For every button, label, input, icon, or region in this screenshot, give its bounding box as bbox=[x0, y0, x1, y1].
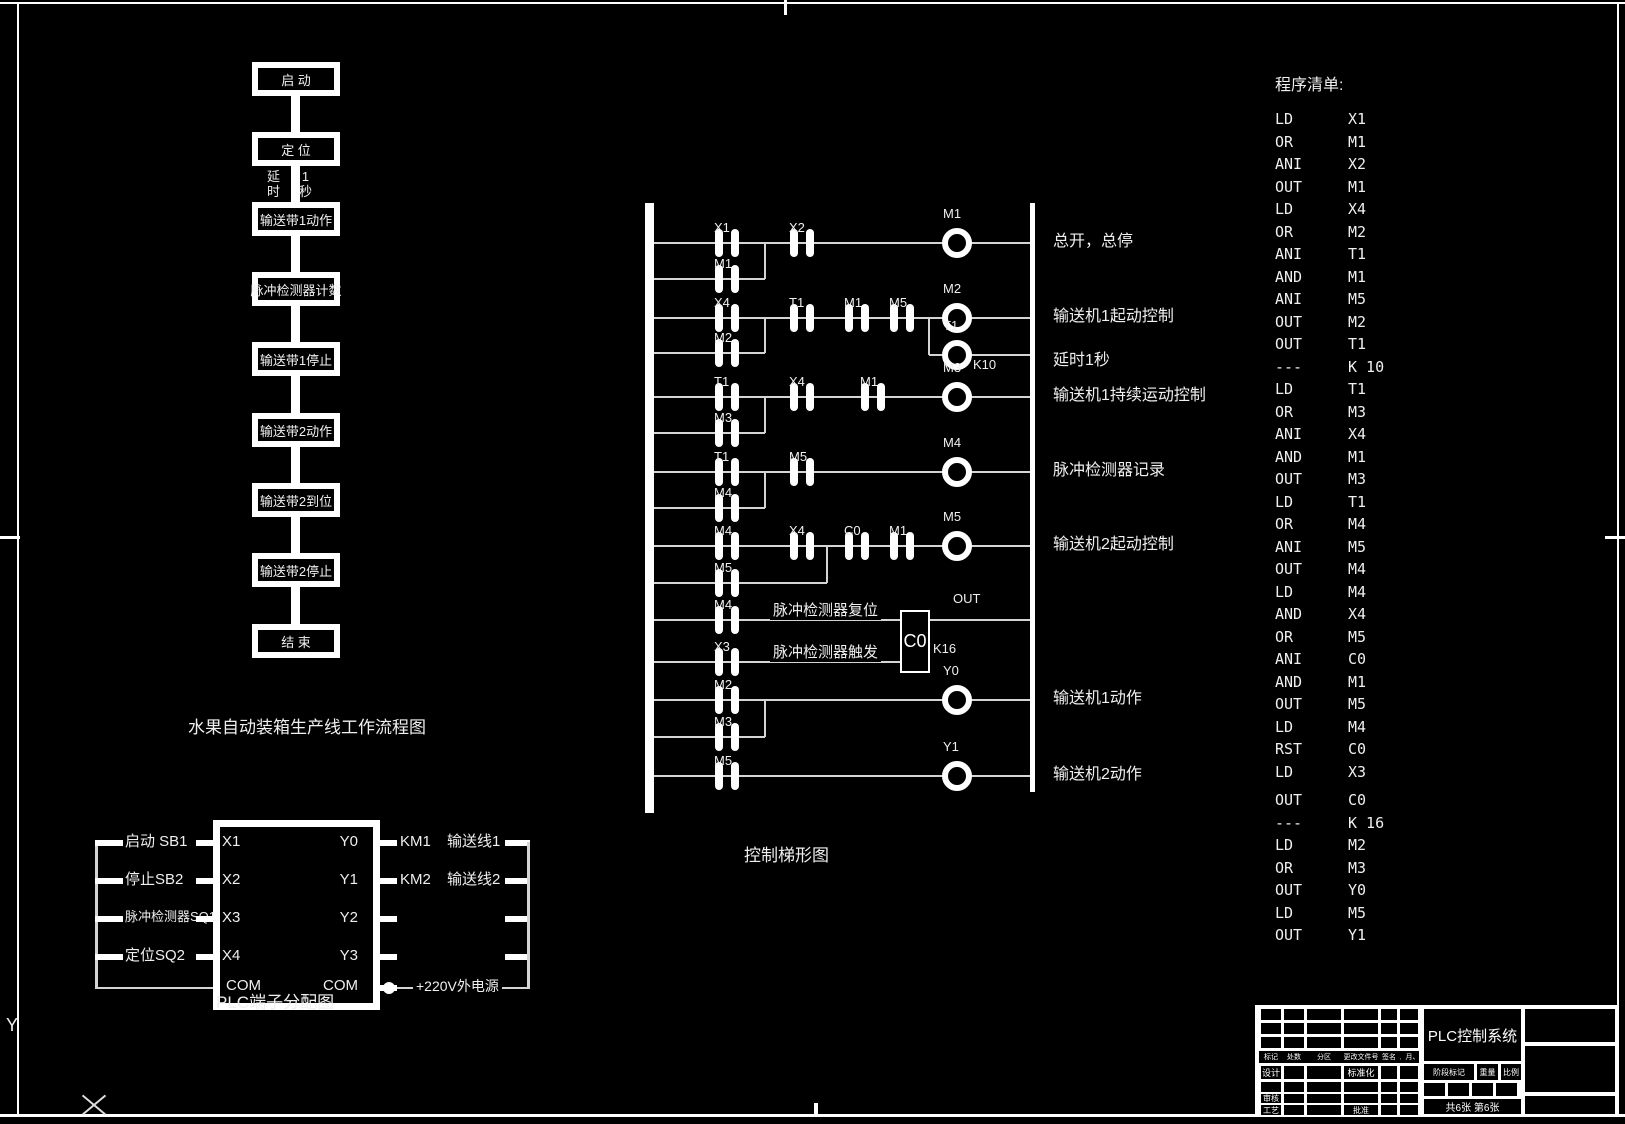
program-arg: M5 bbox=[1348, 290, 1366, 308]
terminal-output-pin: Y2 bbox=[323, 910, 358, 927]
terminal-input-label: 停止SB2 bbox=[125, 872, 183, 889]
program-op: AND bbox=[1275, 269, 1348, 286]
counter-reset-contact-bar bbox=[731, 606, 739, 634]
ladder-contact-bar bbox=[731, 532, 739, 560]
terminal-output-line: 输送线1 bbox=[447, 834, 500, 851]
title-block-cell bbox=[1344, 1037, 1378, 1048]
ladder-coil-label: M1 bbox=[943, 207, 961, 221]
ladder-parallel-contact-label: M1 bbox=[714, 257, 732, 271]
terminal-input-pin: X2 bbox=[222, 872, 240, 889]
title-block-cell bbox=[1284, 1082, 1304, 1092]
counter-out-label: OUT bbox=[953, 592, 980, 606]
title-block-cell bbox=[1261, 1009, 1281, 1020]
ladder-contact-label: T1 bbox=[714, 375, 729, 389]
ladder-coil bbox=[942, 531, 972, 561]
terminal-right-pin bbox=[380, 878, 397, 884]
title-block-cell bbox=[1472, 1083, 1493, 1096]
program-title: 程序清单: bbox=[1275, 77, 1343, 95]
ladder-parallel-wire bbox=[654, 582, 827, 584]
frame-center-tick-right bbox=[1605, 536, 1625, 539]
ladder-coil-label: M5 bbox=[943, 510, 961, 524]
counter-trigger-contact-bar bbox=[731, 648, 739, 676]
title-block-cell bbox=[1448, 1083, 1469, 1096]
program-line: ANIX2 bbox=[1275, 156, 1366, 173]
program-op: OUT bbox=[1275, 561, 1348, 578]
program-op: AND bbox=[1275, 606, 1348, 623]
ladder-coil-label: Y0 bbox=[943, 664, 959, 678]
program-op: ANI bbox=[1275, 156, 1348, 173]
title-block-revision-header: 签名 bbox=[1381, 1051, 1397, 1063]
program-op: AND bbox=[1275, 674, 1348, 691]
program-arg: M4 bbox=[1348, 515, 1366, 533]
ladder-contact-bar bbox=[806, 229, 814, 257]
ladder-contact-label: T1 bbox=[714, 450, 729, 464]
terminal-caption: PLC端子分配图 bbox=[216, 994, 334, 1013]
program-line: OUTC0 bbox=[1275, 792, 1366, 809]
ladder-contact-bar bbox=[806, 383, 814, 411]
title-block-cell bbox=[1381, 1066, 1397, 1079]
ladder-rung-comment: 延时1秒 bbox=[1053, 352, 1110, 370]
ladder-rung-wire bbox=[654, 545, 1030, 547]
title-block-cell bbox=[1400, 1023, 1418, 1034]
title-block-cell bbox=[1400, 1082, 1418, 1092]
program-line: ORM3 bbox=[1275, 860, 1366, 877]
ladder-coil bbox=[942, 685, 972, 715]
frame-border-top bbox=[0, 2, 1625, 4]
program-line: LDM4 bbox=[1275, 719, 1366, 736]
title-block-cell: 工艺 bbox=[1261, 1105, 1281, 1115]
ladder-parallel-contact-label: M3 bbox=[714, 715, 732, 729]
program-arg: M2 bbox=[1348, 223, 1366, 241]
ladder-contact-label: M1 bbox=[860, 375, 878, 389]
program-op: LD bbox=[1275, 381, 1348, 398]
ucs-y-axis-label: Y bbox=[6, 1016, 18, 1036]
program-line: OUTM3 bbox=[1275, 471, 1366, 488]
program-line: LDT1 bbox=[1275, 494, 1366, 511]
ladder-timer-coil-label: T1 bbox=[943, 319, 958, 333]
ladder-contact-label: C0 bbox=[844, 524, 861, 538]
ladder-rung-comment: 脉冲检测器记录 bbox=[1053, 462, 1165, 480]
title-block-scale: 比例 bbox=[1501, 1064, 1521, 1080]
ladder-parallel-join-wire bbox=[764, 397, 766, 433]
ladder-contact-bar bbox=[906, 532, 914, 560]
title-block-cell bbox=[1400, 1037, 1418, 1048]
title-block-cell bbox=[1381, 1094, 1397, 1103]
program-line: ANDX4 bbox=[1275, 606, 1366, 623]
ladder-parallel-wire bbox=[654, 352, 765, 354]
title-block-stage-mark: 阶段标记 bbox=[1424, 1064, 1474, 1080]
flowchart-step-box: 输送带1动作 bbox=[252, 202, 340, 236]
terminal-input-pin: X4 bbox=[222, 948, 240, 965]
counter-reset-contact-label: M4 bbox=[714, 598, 732, 612]
flowchart-step-box: 输送带2动作 bbox=[252, 413, 340, 447]
ladder-contact-label: M5 bbox=[789, 450, 807, 464]
program-op: OR bbox=[1275, 629, 1348, 646]
program-arg: X2 bbox=[1348, 155, 1366, 173]
ladder-contact-bar bbox=[731, 686, 739, 714]
terminal-right-bracket bbox=[527, 842, 530, 989]
ladder-contact-label: M2 bbox=[714, 678, 732, 692]
terminal-left-stub bbox=[95, 916, 123, 922]
flowchart-step-box: 结 束 bbox=[252, 624, 340, 658]
title-block-cell bbox=[1261, 1037, 1281, 1048]
program-line: ANIC0 bbox=[1275, 651, 1366, 668]
title-block-right-cell bbox=[1525, 1046, 1615, 1092]
program-op: LD bbox=[1275, 111, 1348, 128]
program-line: ANIM5 bbox=[1275, 291, 1366, 308]
frame-center-tick-top bbox=[784, 0, 787, 15]
title-block-drawing-title: PLC控制系统 bbox=[1424, 1009, 1521, 1061]
ladder-contact-label: M4 bbox=[714, 524, 732, 538]
program-arg: M3 bbox=[1348, 470, 1366, 488]
counter-trigger-contact-label: X3 bbox=[714, 640, 730, 654]
flowchart-step-box: 输送带1停止 bbox=[252, 342, 340, 376]
program-op: OR bbox=[1275, 404, 1348, 421]
title-block-cell bbox=[1381, 1037, 1397, 1048]
ladder-contact-label: X4 bbox=[789, 375, 805, 389]
program-line: OUTM4 bbox=[1275, 561, 1366, 578]
program-arg: M5 bbox=[1348, 628, 1366, 646]
title-block-cell bbox=[1400, 1105, 1418, 1115]
program-line: RSTC0 bbox=[1275, 741, 1366, 758]
ladder-rung-wire bbox=[654, 775, 1030, 777]
frame-border-right bbox=[1617, 2, 1619, 1117]
ladder-parallel-join-wire bbox=[826, 546, 828, 583]
program-line: OUTM1 bbox=[1275, 179, 1366, 196]
ladder-contact-label: X2 bbox=[789, 221, 805, 235]
title-block-cell bbox=[1284, 1009, 1304, 1020]
program-arg: C0 bbox=[1348, 650, 1366, 668]
ladder-contact-label: X4 bbox=[789, 524, 805, 538]
program-op: LD bbox=[1275, 494, 1348, 511]
title-block-cell bbox=[1344, 1082, 1378, 1092]
program-op: LD bbox=[1275, 584, 1348, 601]
terminal-input-label: 启动 SB1 bbox=[125, 834, 188, 851]
ladder-contact-bar bbox=[861, 532, 869, 560]
program-arg: M2 bbox=[1348, 836, 1366, 854]
ladder-rung-wire bbox=[654, 699, 1030, 701]
ladder-rung-comment: 总开，总停 bbox=[1053, 233, 1133, 251]
terminal-left-stub bbox=[95, 840, 123, 846]
title-block-cell bbox=[1284, 1037, 1304, 1048]
title-block-cell bbox=[1400, 1009, 1418, 1020]
program-op: OUT bbox=[1275, 314, 1348, 331]
terminal-input-pin: X3 bbox=[222, 910, 240, 927]
ladder-coil-label: M4 bbox=[943, 436, 961, 450]
title-block-cell bbox=[1344, 1023, 1378, 1034]
program-line: ORM5 bbox=[1275, 629, 1366, 646]
ladder-contact-bar bbox=[806, 458, 814, 486]
ladder-rung-comment: 输送机1动作 bbox=[1053, 690, 1142, 708]
ladder-parallel-contact-label: M5 bbox=[714, 561, 732, 575]
title-block-cell bbox=[1344, 1009, 1378, 1020]
program-arg: M4 bbox=[1348, 560, 1366, 578]
program-arg: M3 bbox=[1348, 859, 1366, 877]
ladder-contact-bar bbox=[806, 532, 814, 560]
program-arg: T1 bbox=[1348, 245, 1366, 263]
ladder-parallel-contact-bar bbox=[731, 419, 739, 447]
program-op: OR bbox=[1275, 134, 1348, 151]
ladder-timer-k-label: K10 bbox=[973, 358, 996, 372]
title-block-cell bbox=[1381, 1023, 1397, 1034]
program-arg: Y0 bbox=[1348, 881, 1366, 899]
program-line: ORM4 bbox=[1275, 516, 1366, 533]
program-line: LDM2 bbox=[1275, 837, 1366, 854]
program-arg: M3 bbox=[1348, 403, 1366, 421]
program-line: ANIT1 bbox=[1275, 246, 1366, 263]
program-op: OUT bbox=[1275, 179, 1348, 196]
program-op: OUT bbox=[1275, 927, 1348, 944]
title-block-cell bbox=[1284, 1105, 1304, 1115]
terminal-left-pin bbox=[196, 954, 213, 960]
title-block-weight: 重量 bbox=[1477, 1064, 1498, 1080]
terminal-output-pin: Y3 bbox=[323, 948, 358, 965]
title-block-cell bbox=[1307, 1023, 1341, 1034]
program-line: LDX3 bbox=[1275, 764, 1366, 781]
program-line: LDX1 bbox=[1275, 111, 1366, 128]
program-arg: M4 bbox=[1348, 583, 1366, 601]
program-op: OR bbox=[1275, 224, 1348, 241]
program-op: LD bbox=[1275, 837, 1348, 854]
program-arg: M5 bbox=[1348, 538, 1366, 556]
ladder-contact-bar bbox=[731, 304, 739, 332]
ladder-contact-bar bbox=[731, 229, 739, 257]
ladder-contact-label: M1 bbox=[844, 296, 862, 310]
terminal-junction-dot bbox=[383, 982, 395, 994]
title-block-revision-header: 年、月、日 bbox=[1400, 1051, 1418, 1063]
program-line: ANIX4 bbox=[1275, 426, 1366, 443]
title-block-cell bbox=[1400, 1066, 1418, 1079]
ladder-contact-bar bbox=[731, 458, 739, 486]
terminal-output-label: KM2 bbox=[400, 872, 431, 889]
title-block-cell: 批准 bbox=[1344, 1105, 1378, 1115]
program-arg: C0 bbox=[1348, 791, 1366, 809]
terminal-output-pin: Y0 bbox=[323, 834, 358, 851]
program-op: ANI bbox=[1275, 426, 1348, 443]
ladder-parallel-contact-bar bbox=[731, 494, 739, 522]
program-arg: X4 bbox=[1348, 200, 1366, 218]
ladder-contact-bar bbox=[731, 383, 739, 411]
terminal-power-label: +220V外电源 bbox=[413, 979, 502, 994]
ladder-coil bbox=[942, 228, 972, 258]
terminal-input-pin: X1 bbox=[222, 834, 240, 851]
title-block-cell bbox=[1344, 1094, 1378, 1103]
title-block-cell: 设计 bbox=[1261, 1066, 1281, 1079]
title-block-cell bbox=[1307, 1037, 1341, 1048]
title-block-cell bbox=[1381, 1082, 1397, 1092]
ladder-caption: 控制梯形图 bbox=[744, 847, 829, 866]
program-arg: T1 bbox=[1348, 380, 1366, 398]
title-block-cell bbox=[1496, 1083, 1517, 1096]
flowchart-step-box: 定 位 bbox=[252, 132, 340, 166]
program-op: ANI bbox=[1275, 651, 1348, 668]
program-arg: M5 bbox=[1348, 904, 1366, 922]
ladder-contact-label: T1 bbox=[789, 296, 804, 310]
title-block-cell bbox=[1284, 1023, 1304, 1034]
program-op: OR bbox=[1275, 860, 1348, 877]
program-line: ANDM1 bbox=[1275, 269, 1366, 286]
ladder-parallel-wire bbox=[654, 507, 765, 509]
ladder-parallel-contact-bar bbox=[731, 723, 739, 751]
ladder-parallel-contact-label: M3 bbox=[714, 411, 732, 425]
program-arg: M1 bbox=[1348, 178, 1366, 196]
ladder-contact-label: M1 bbox=[889, 524, 907, 538]
title-block-cell bbox=[1307, 1082, 1341, 1092]
flowchart-delay-note-left: 延时 bbox=[266, 169, 281, 199]
flowchart-caption: 水果自动装箱生产线工作流程图 bbox=[188, 719, 426, 738]
terminal-right-pin bbox=[380, 954, 397, 960]
program-op: ANI bbox=[1275, 539, 1348, 556]
title-block-revision-header: 处数 bbox=[1284, 1051, 1304, 1063]
counter-out-wire bbox=[930, 619, 1030, 621]
program-op: LD bbox=[1275, 905, 1348, 922]
title-block-cell bbox=[1261, 1023, 1281, 1034]
counter-k-label: K16 bbox=[933, 642, 956, 656]
program-op: LD bbox=[1275, 201, 1348, 218]
program-arg: C0 bbox=[1348, 740, 1366, 758]
ladder-rung-wire bbox=[654, 317, 1030, 319]
program-line: OUTY0 bbox=[1275, 882, 1366, 899]
ladder-contact-label: X1 bbox=[714, 221, 730, 235]
ladder-left-rail bbox=[645, 203, 654, 813]
terminal-left-pin bbox=[196, 916, 213, 922]
ladder-contact-bar bbox=[731, 762, 739, 790]
program-arg: K 16 bbox=[1348, 814, 1384, 832]
program-arg: M1 bbox=[1348, 448, 1366, 466]
ladder-contact-bar bbox=[877, 383, 885, 411]
program-arg: X1 bbox=[1348, 110, 1366, 128]
counter-trigger-text: 脉冲检测器触发 bbox=[770, 645, 881, 662]
program-line: OUTY1 bbox=[1275, 927, 1366, 944]
program-arg: X4 bbox=[1348, 605, 1366, 623]
program-op: ANI bbox=[1275, 246, 1348, 263]
program-arg: M2 bbox=[1348, 313, 1366, 331]
ladder-coil-label: Y1 bbox=[943, 740, 959, 754]
ladder-contact-label: X4 bbox=[714, 296, 730, 310]
terminal-output-label: KM1 bbox=[400, 834, 431, 851]
program-arg: M1 bbox=[1348, 268, 1366, 286]
program-line: ORM2 bbox=[1275, 224, 1366, 241]
program-line: ORM1 bbox=[1275, 134, 1366, 151]
program-arg: X4 bbox=[1348, 425, 1366, 443]
title-block-revision-header: 分区 bbox=[1307, 1051, 1341, 1063]
title-block-cell bbox=[1424, 1083, 1445, 1096]
title-block-cell bbox=[1307, 1094, 1341, 1103]
flowchart-step-box: 输送带2停止 bbox=[252, 553, 340, 587]
terminal-right-pin bbox=[380, 840, 397, 846]
program-arg: M1 bbox=[1348, 133, 1366, 151]
ladder-parallel-wire bbox=[654, 736, 765, 738]
program-line: OUTT1 bbox=[1275, 336, 1366, 353]
program-line: LDX4 bbox=[1275, 201, 1366, 218]
flowchart-step-box: 输送带2到位 bbox=[252, 483, 340, 517]
program-line: ANIM5 bbox=[1275, 539, 1366, 556]
program-line: ANDM1 bbox=[1275, 674, 1366, 691]
ladder-coil-label: M2 bbox=[943, 282, 961, 296]
program-op: LD bbox=[1275, 719, 1348, 736]
ladder-coil bbox=[942, 457, 972, 487]
program-op: OUT bbox=[1275, 882, 1348, 899]
program-op: OUT bbox=[1275, 471, 1348, 488]
title-block-cell bbox=[1381, 1009, 1397, 1020]
program-line: LDM4 bbox=[1275, 584, 1366, 601]
program-line: ORM3 bbox=[1275, 404, 1366, 421]
program-arg: K 10 bbox=[1348, 358, 1384, 376]
ladder-rung-comment: 输送机1持续运动控制 bbox=[1053, 387, 1206, 405]
terminal-left-com-wire bbox=[95, 987, 213, 989]
title-block-cell bbox=[1307, 1009, 1341, 1020]
program-op: OUT bbox=[1275, 792, 1348, 809]
ladder-rung-wire bbox=[654, 396, 1030, 398]
ladder-rung-comment: 输送机2动作 bbox=[1053, 766, 1142, 784]
terminal-left-pin bbox=[196, 878, 213, 884]
program-op: LD bbox=[1275, 764, 1348, 781]
flowchart-step-box: 启 动 bbox=[252, 62, 340, 96]
frame-border-left bbox=[17, 2, 19, 1117]
title-block-cell: 审核 bbox=[1261, 1094, 1281, 1103]
ladder-parallel-contact-bar bbox=[731, 339, 739, 367]
terminal-output-line: 输送线2 bbox=[447, 872, 500, 889]
program-line: ANDM1 bbox=[1275, 449, 1366, 466]
terminal-left-stub bbox=[95, 954, 123, 960]
ladder-rung-comment: 输送机1起动控制 bbox=[1053, 308, 1174, 326]
ladder-parallel-join-wire bbox=[764, 472, 766, 508]
ladder-rung-wire bbox=[654, 242, 1030, 244]
ladder-coil bbox=[942, 761, 972, 791]
program-line: ---K 16 bbox=[1275, 815, 1384, 832]
program-line: LDM5 bbox=[1275, 905, 1366, 922]
title-block-cell: 标准化 bbox=[1344, 1066, 1378, 1079]
frame-center-tick-left bbox=[0, 536, 20, 539]
ladder-parallel-wire bbox=[654, 278, 765, 280]
program-line: OUTM2 bbox=[1275, 314, 1366, 331]
program-arg: Y1 bbox=[1348, 926, 1366, 944]
title-block-cell bbox=[1284, 1094, 1304, 1103]
program-arg: M4 bbox=[1348, 718, 1366, 736]
title-block-sheet-count: 共6张 第6张 bbox=[1424, 1099, 1521, 1114]
title-block-cell bbox=[1400, 1094, 1418, 1103]
terminal-left-stub bbox=[95, 878, 123, 884]
ladder-right-rail bbox=[1030, 203, 1035, 792]
ladder-rung-comment: 输送机2起动控制 bbox=[1053, 536, 1174, 554]
ladder-coil-label: M3 bbox=[943, 361, 961, 375]
terminal-right-pin bbox=[380, 916, 397, 922]
title-block-revision-header: 更改文件号 bbox=[1344, 1051, 1378, 1063]
ladder-parallel-join-wire bbox=[764, 243, 766, 279]
program-op: --- bbox=[1275, 359, 1348, 376]
program-line: ---K 10 bbox=[1275, 359, 1384, 376]
program-op: RST bbox=[1275, 741, 1348, 758]
ladder-parallel-contact-label: M2 bbox=[714, 331, 732, 345]
ladder-contact-label: M5 bbox=[714, 754, 732, 768]
terminal-output-pin: Y1 bbox=[323, 872, 358, 889]
program-arg: X3 bbox=[1348, 763, 1366, 781]
counter-reset-text: 脉冲检测器复位 bbox=[770, 603, 881, 620]
ladder-parallel-contact-label: M4 bbox=[714, 486, 732, 500]
ladder-branch-wire bbox=[928, 318, 930, 355]
ladder-parallel-contact-bar bbox=[731, 265, 739, 293]
terminal-left-pin bbox=[196, 840, 213, 846]
program-arg: M5 bbox=[1348, 695, 1366, 713]
program-op: ANI bbox=[1275, 291, 1348, 308]
ladder-parallel-join-wire bbox=[764, 700, 766, 737]
program-arg: T1 bbox=[1348, 493, 1366, 511]
cad-drawing-canvas: Y启 动定 位输送带1动作脉冲检测器计数输送带1停止输送带2动作输送带2到位输送… bbox=[0, 0, 1625, 1124]
program-op: --- bbox=[1275, 815, 1348, 832]
program-line: OUTM5 bbox=[1275, 696, 1366, 713]
title-block-cell bbox=[1307, 1066, 1341, 1079]
ladder-parallel-wire bbox=[654, 432, 765, 434]
